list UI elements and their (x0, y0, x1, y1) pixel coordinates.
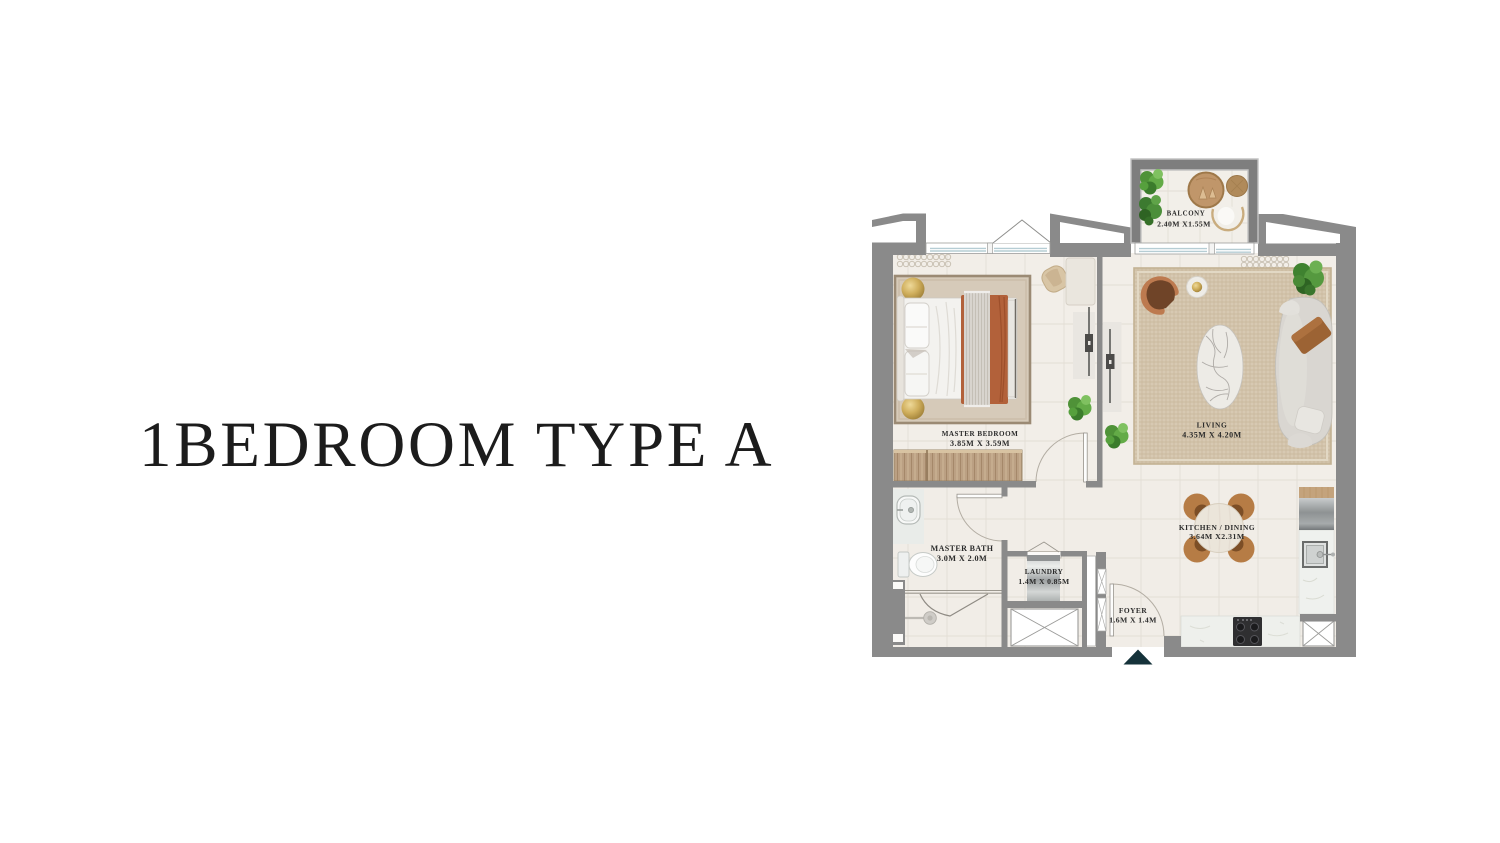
svg-text:2.40M X1.55M: 2.40M X1.55M (1157, 220, 1211, 229)
svg-text:1.4M X 0.85M: 1.4M X 0.85M (1018, 577, 1069, 586)
svg-text:KITCHEN / DINING: KITCHEN / DINING (1179, 523, 1255, 532)
svg-text:LAUNDRY: LAUNDRY (1025, 568, 1064, 576)
svg-text:LIVING: LIVING (1197, 421, 1228, 430)
svg-text:1.6M X 1.4M: 1.6M X 1.4M (1109, 616, 1157, 625)
svg-text:4.35M X 4.20M: 4.35M X 4.20M (1182, 431, 1241, 440)
svg-text:3.85M X 3.59M: 3.85M X 3.59M (950, 439, 1010, 448)
svg-text:MASTER BATH: MASTER BATH (931, 544, 994, 553)
svg-text:MASTER BEDROOM: MASTER BEDROOM (942, 430, 1019, 438)
svg-text:3.0M X 2.0M: 3.0M X 2.0M (937, 554, 987, 563)
svg-text:3.64M X2.31M: 3.64M X2.31M (1189, 532, 1245, 541)
svg-text:BALCONY: BALCONY (1167, 211, 1206, 218)
svg-text:FOYER: FOYER (1119, 606, 1148, 615)
